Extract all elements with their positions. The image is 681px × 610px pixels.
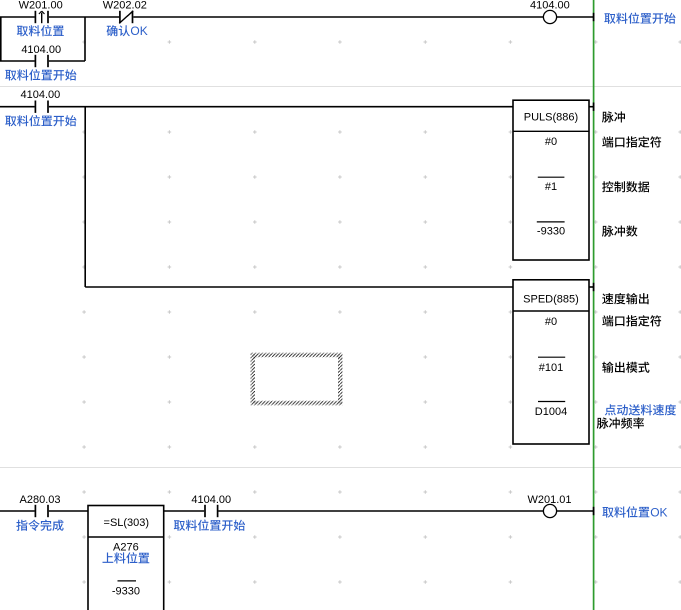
svg-text:=SL(303): =SL(303) (104, 517, 150, 529)
svg-text:-9330: -9330 (112, 585, 140, 597)
svg-text:W201.00: W201.00 (19, 0, 63, 12)
svg-text:OK: OK (130, 24, 147, 38)
svg-text:#0: #0 (545, 316, 557, 328)
svg-text:4104.00: 4104.00 (530, 0, 570, 12)
svg-text:-9330: -9330 (537, 225, 565, 237)
svg-text:PULS(886): PULS(886) (524, 111, 578, 123)
svg-text:A276: A276 (113, 541, 139, 553)
svg-text:OK: OK (650, 505, 667, 519)
svg-text:A280.03: A280.03 (20, 494, 61, 506)
svg-text:#101: #101 (539, 362, 563, 374)
svg-text:W201.01: W201.01 (527, 494, 571, 506)
svg-text:D1004: D1004 (535, 406, 567, 418)
svg-text:#0: #0 (545, 136, 557, 148)
svg-text:4104.00: 4104.00 (21, 89, 61, 101)
svg-text:4104.00: 4104.00 (191, 494, 231, 506)
svg-text:#1: #1 (545, 181, 557, 193)
svg-text:SPED(885): SPED(885) (523, 294, 579, 306)
svg-text:4104.00: 4104.00 (21, 44, 61, 56)
svg-text:W202.02: W202.02 (103, 0, 147, 12)
